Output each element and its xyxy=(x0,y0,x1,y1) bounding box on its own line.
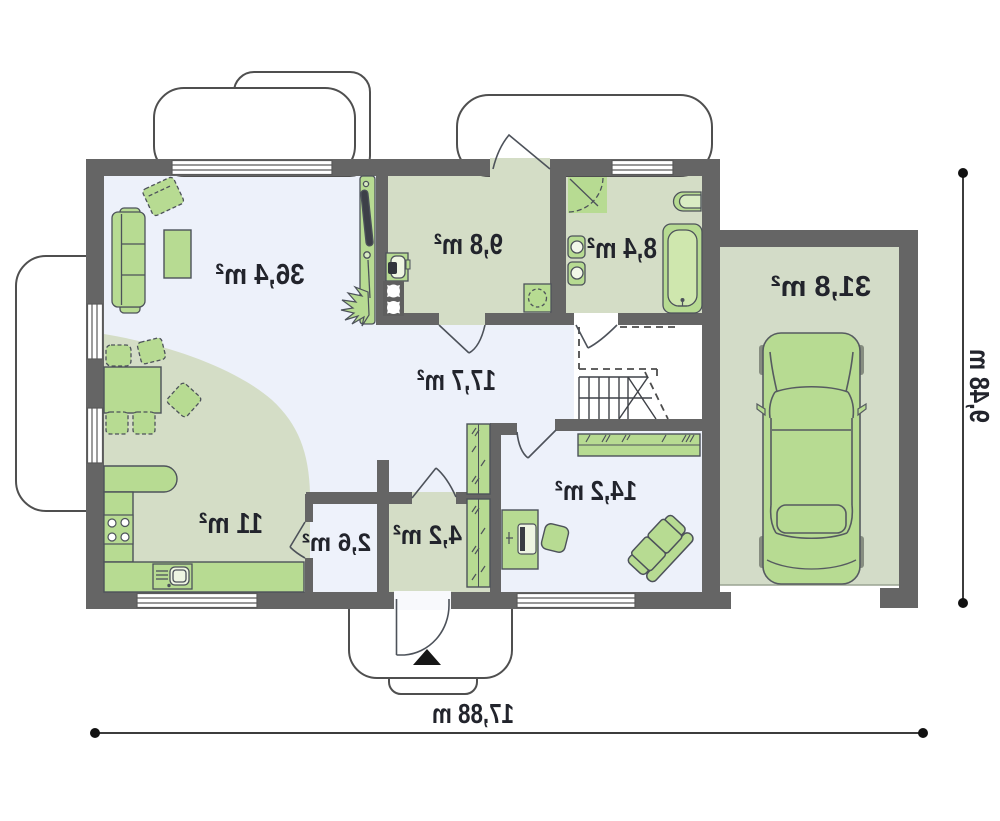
svg-text:17,7 m²: 17,7 m² xyxy=(417,365,496,397)
svg-text:9,8 m²: 9,8 m² xyxy=(434,229,503,261)
svg-text:14,2 m²: 14,2 m² xyxy=(555,475,637,506)
svg-text:36,4 m²: 36,4 m² xyxy=(215,259,304,291)
svg-text:17,88 m: 17,88 m xyxy=(432,698,514,729)
svg-text:11 m²: 11 m² xyxy=(199,508,263,540)
svg-text:2,6 m²: 2,6 m² xyxy=(302,529,371,557)
svg-text:9,48 m: 9,48 m xyxy=(964,349,995,423)
svg-text:4,2 m²: 4,2 m² xyxy=(393,520,462,550)
svg-text:8,4 m²: 8,4 m² xyxy=(587,233,657,265)
svg-text:31,8 m²: 31,8 m² xyxy=(771,271,871,303)
